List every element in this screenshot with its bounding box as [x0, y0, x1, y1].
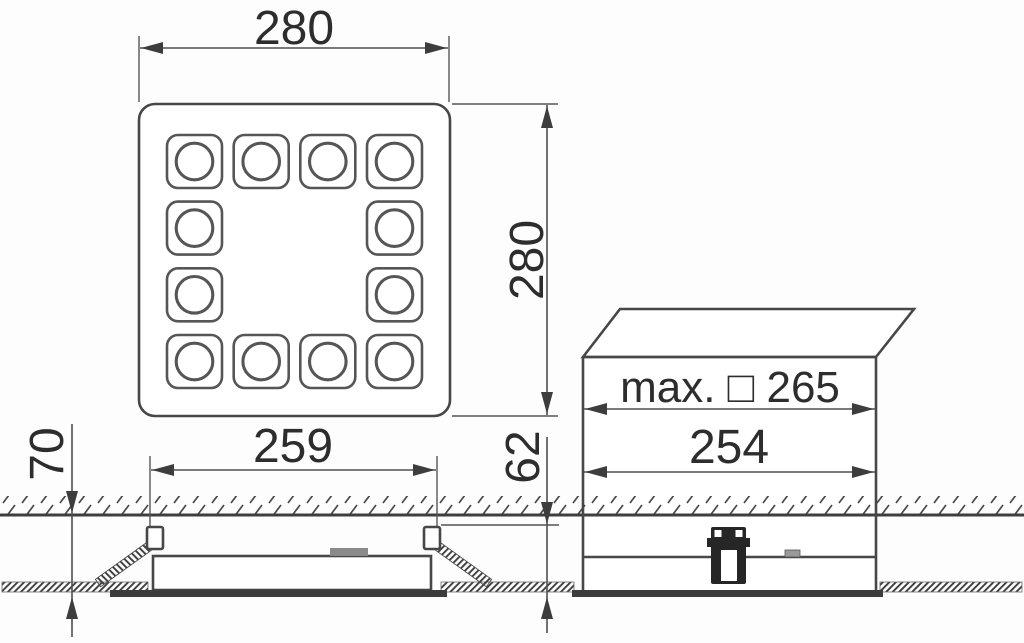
led-module: [167, 135, 222, 188]
led-module: [167, 335, 222, 388]
led-module: [367, 135, 422, 188]
dimension-max-cutout: max. □ 265: [584, 363, 875, 415]
dimension-right-height: 280: [452, 104, 558, 416]
installed-fixture-section: 259 70 62: [21, 420, 559, 637]
led-module: [300, 135, 355, 188]
fixture-connector: [330, 548, 368, 556]
housing-flange: [572, 590, 883, 597]
spring-clip-left: [95, 541, 153, 586]
led-module: [367, 335, 422, 388]
dimension-min-depth: 70: [21, 424, 78, 637]
spring-clip-right: [433, 541, 491, 586]
dim-label-panel-width: 280: [254, 2, 334, 55]
dim-label-min-depth: 70: [21, 427, 74, 480]
dim-label-cutout: 259: [253, 420, 333, 473]
fixture-flange: [110, 590, 447, 597]
dim-label-max-cutout: max. □ 265: [620, 363, 840, 412]
dim-label-panel-height: 280: [501, 220, 554, 300]
top-view: 280 280: [139, 2, 558, 416]
fixture-body: [153, 556, 431, 590]
led-module: [234, 335, 289, 388]
led-module: [300, 335, 355, 388]
dim-label-recessed-height: 62: [497, 430, 550, 483]
ceiling-board-middle: [441, 582, 574, 592]
dimension-recessed-height: 62: [441, 430, 559, 633]
technical-drawing-page: 280 280: [0, 0, 1024, 643]
housing-latch-detail: [785, 550, 800, 557]
led-module: [234, 135, 289, 188]
led-module: [367, 268, 422, 321]
clip-bracket-right: [424, 527, 440, 549]
dim-label-housing-width: 254: [689, 421, 769, 474]
ceiling-board-right: [880, 582, 1022, 592]
luminaire-dimension-drawing: 280 280: [0, 0, 1024, 643]
clip-bracket-left: [147, 527, 163, 549]
led-module: [167, 268, 222, 321]
led-module: [367, 202, 422, 255]
ceiling-hatch: [0, 496, 1024, 514]
led-module: [167, 202, 222, 255]
mounting-clip: [707, 527, 750, 584]
housing-top-face: [583, 309, 914, 357]
dimension-top-width: 280: [139, 2, 449, 102]
